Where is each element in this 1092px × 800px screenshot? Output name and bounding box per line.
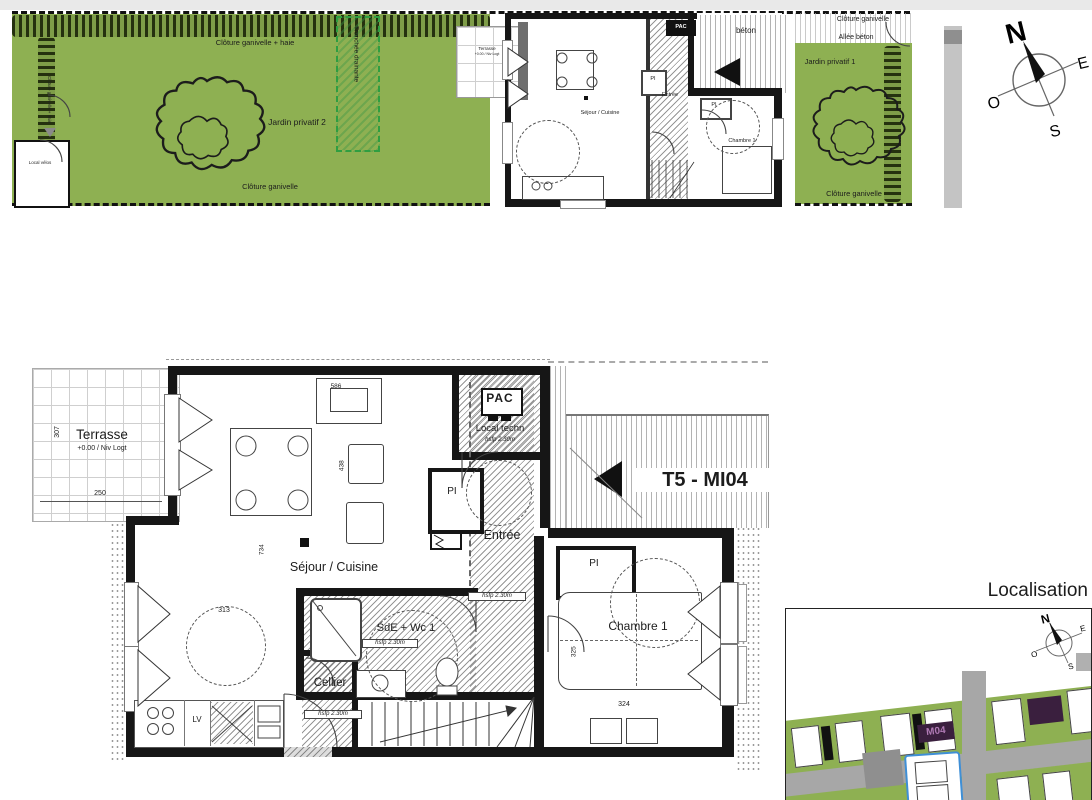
- wall: [452, 452, 550, 460]
- map-house-dark: [821, 726, 834, 761]
- dim-438: 438: [338, 446, 345, 486]
- map-house: [791, 725, 823, 768]
- turn-circle: [466, 460, 532, 526]
- gravel-top-line: [548, 361, 768, 363]
- pac-label: PAC: [481, 392, 519, 405]
- wall: [168, 366, 548, 375]
- localisation-map: M04 N E O S: [785, 608, 1092, 800]
- mini-turn-circle: [706, 100, 760, 154]
- unit-title: T5 - MI04: [634, 468, 776, 492]
- unit-title-triangle-icon: [594, 461, 622, 497]
- mini-window: [502, 122, 513, 164]
- sejour-label: Séjour / Cuisine: [274, 560, 394, 574]
- dim-307: 307: [54, 410, 62, 454]
- garden-2-label: Jardin privatif 2: [264, 118, 330, 128]
- mini-pi-hall-label: PI: [642, 76, 664, 82]
- window: [720, 582, 738, 644]
- map-compass-rose: N E O S: [1030, 611, 1090, 673]
- allee-beton-label: Allée béton: [824, 34, 888, 42]
- map-selected-building: [904, 751, 964, 800]
- marker-triangle-icon: [44, 128, 56, 137]
- kitchen-cabinet-inner: [330, 388, 368, 412]
- mini-beton-label: béton: [724, 27, 768, 36]
- window: [124, 582, 139, 648]
- entrance-threshold: [284, 747, 332, 757]
- path-strip-top: [944, 30, 962, 44]
- mini-wall: [505, 199, 782, 207]
- cellier-label: Cellier: [300, 677, 360, 690]
- terrasse-dim-line: [40, 501, 162, 502]
- map-house: [991, 698, 1026, 745]
- mini-turn-circle: [516, 120, 580, 184]
- dim-586: 586: [316, 383, 356, 390]
- window: [164, 394, 181, 496]
- drainage-trench: Tranchée drainante: [336, 16, 380, 152]
- pi-hall-label: PI: [434, 486, 470, 497]
- pac-block: [488, 414, 498, 421]
- window: [720, 644, 738, 706]
- sofa: [348, 444, 384, 484]
- map-road-vertical: [962, 671, 986, 800]
- electrical-panel: [430, 532, 462, 550]
- dim-313: 313: [196, 607, 252, 615]
- entree-height-label: hsfp 2.30m: [468, 592, 526, 601]
- tree-icon: [806, 84, 906, 184]
- mini-wall: [688, 88, 782, 96]
- dim-250: 250: [78, 490, 122, 498]
- cellier-floor: [302, 656, 352, 748]
- mini-table: [556, 50, 594, 90]
- compass-e: E: [1076, 54, 1090, 73]
- shutter-rail: [738, 646, 747, 704]
- site-fence-bottom-left: [12, 203, 490, 206]
- mini-hall-wall: [646, 19, 650, 199]
- wall: [542, 747, 734, 757]
- dining-table: [230, 428, 312, 516]
- dim-325: 325: [570, 630, 577, 674]
- bike-room: [14, 140, 70, 208]
- garden-1-label: Jardin privatif 1: [796, 58, 864, 66]
- map-compass-n: N: [1039, 611, 1051, 627]
- turn-circle: [186, 606, 266, 686]
- map-selected-inner: [916, 784, 949, 800]
- entree-label: Entrée: [468, 528, 536, 542]
- tree-icon: [148, 74, 266, 192]
- mini-hall-hatch: [650, 19, 688, 199]
- bike-room-label: Local vélos: [14, 160, 66, 165]
- counter-divider: [254, 700, 255, 746]
- compass-n: N: [1002, 15, 1029, 50]
- fence-bottom-label: Clôture ganivelle: [212, 183, 328, 191]
- cellier-height-label: hsfp 2.30m: [304, 710, 362, 719]
- wall: [330, 747, 542, 757]
- wall: [126, 747, 286, 757]
- roof-dashed-line: [166, 359, 550, 360]
- compass-s: S: [1048, 122, 1062, 140]
- mini-terrasse-wall: [518, 22, 528, 100]
- wall: [534, 536, 544, 756]
- nightstand: [590, 718, 622, 744]
- fence-top-right-label: Clôture ganivelle: [820, 16, 906, 24]
- local-techn-height-label: hsfp 2.30m: [462, 437, 538, 444]
- dishwasher-label: LV: [184, 716, 210, 725]
- site-fence-bottom-right: [795, 203, 912, 206]
- localisation-title: Localisation: [938, 580, 1088, 601]
- shutter-rail: [738, 584, 747, 642]
- wall: [540, 366, 550, 528]
- dim-324: 324: [596, 701, 652, 709]
- map-house: [996, 775, 1033, 800]
- hedge-top: [12, 15, 490, 37]
- sde-label: SdE + Wc 1: [346, 622, 466, 634]
- turn-circle: [610, 558, 700, 648]
- compass-o: O: [986, 94, 1002, 114]
- site-plan: Tranchée drainante Jardin privatif 2 Clô…: [0, 0, 970, 215]
- mini-window: [772, 118, 784, 160]
- fence-top-label: Clôture ganivelle + haie: [180, 39, 330, 47]
- pac-block: [501, 414, 511, 421]
- mini-dot: [584, 96, 588, 100]
- dim-734: 734: [258, 528, 265, 572]
- wall: [452, 372, 459, 456]
- fence-bottom-right-label: Clôture ganivelle: [806, 190, 902, 198]
- mini-pac-label: PAC: [666, 24, 696, 30]
- map-building-purple: [1027, 695, 1064, 725]
- sde-height-label: hsfp 2.30m: [362, 639, 418, 648]
- chambre-label: Chambre 1: [588, 620, 688, 633]
- local-techn-label: Local techn: [458, 424, 542, 435]
- wall: [548, 528, 734, 538]
- map-compass-e: E: [1079, 624, 1086, 634]
- wall: [352, 650, 358, 750]
- terrasse-label: Terrasse: [52, 427, 152, 442]
- nightstand: [626, 718, 658, 744]
- wall: [296, 588, 478, 596]
- mini-window: [502, 40, 513, 80]
- compass-rose: N E O S: [986, 12, 1092, 140]
- map-compass-s: S: [1067, 662, 1074, 672]
- pi-chambre-label: PI: [576, 558, 612, 569]
- map-house: [1042, 770, 1075, 800]
- map-house: [1066, 688, 1092, 735]
- path-strip: [944, 26, 962, 208]
- map-selected-inner: [915, 760, 948, 784]
- trench-label: Tranchée drainante: [352, 26, 359, 82]
- map-unit-label: M04: [917, 724, 954, 739]
- terrasse-level-label: +0.00 / Niv Logt: [50, 445, 154, 453]
- mini-entree-label: Entrée: [650, 92, 690, 98]
- map-building-gray: [862, 749, 904, 789]
- floor-plan-sheet: { "site_plan": { "fence_top": "Clôture g…: [0, 0, 1092, 800]
- mini-sejour-label: Séjour / Cuisine: [568, 110, 632, 116]
- sofa: [346, 502, 384, 544]
- mini-window: [560, 200, 606, 209]
- appliance-hatched: [211, 702, 253, 744]
- column-dot: [300, 538, 309, 547]
